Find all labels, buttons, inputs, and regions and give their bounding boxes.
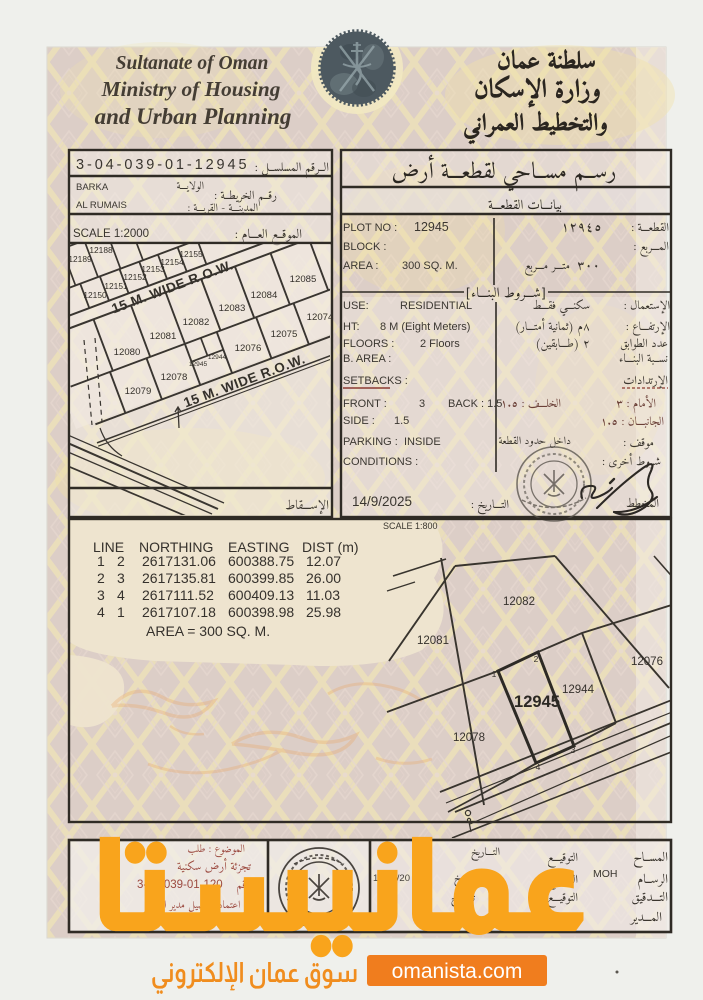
svg-text:BACK : 1.5: BACK : 1.5 xyxy=(448,398,502,410)
svg-text:8 M (Eight Meters): 8 M (Eight Meters) xyxy=(380,321,470,333)
svg-text:HT:: HT: xyxy=(343,321,360,333)
svg-text:12085: 12085 xyxy=(290,274,317,285)
svg-text:11.03: 11.03 xyxy=(306,587,340,603)
svg-text:12945: 12945 xyxy=(414,220,449,234)
svg-text:SIDE :: SIDE : xyxy=(343,415,375,427)
svg-text:1: 1 xyxy=(97,553,105,569)
svg-text:12944: 12944 xyxy=(562,684,595,696)
svg-text:12945: 12945 xyxy=(189,361,208,368)
svg-text:omanista.com: omanista.com xyxy=(392,960,523,983)
svg-text:2 Floors: 2 Floors xyxy=(420,338,460,350)
svg-text:Sultanate of Oman: Sultanate of Oman xyxy=(116,53,269,74)
svg-text:SCALE 1:800: SCALE 1:800 xyxy=(383,521,438,531)
svg-text:1: 1 xyxy=(492,669,497,679)
svg-text:2: 2 xyxy=(117,553,125,569)
svg-text:CONDITIONS :: CONDITIONS : xyxy=(343,456,418,468)
svg-text:600388.75: 600388.75 xyxy=(228,553,294,569)
svg-text:12079: 12079 xyxy=(125,386,152,397)
svg-text:FLOORS :: FLOORS : xyxy=(343,338,394,350)
svg-text:12080: 12080 xyxy=(114,347,141,358)
svg-text:SETBACKS :: SETBACKS : xyxy=(343,375,408,387)
svg-text:12078: 12078 xyxy=(161,372,188,383)
svg-text:12945: 12945 xyxy=(514,693,560,711)
svg-text:12150: 12150 xyxy=(83,290,107,300)
svg-text:4: 4 xyxy=(97,604,105,620)
svg-text:AREA = 300 SQ. M.: AREA = 300 SQ. M. xyxy=(146,623,270,639)
svg-text:4: 4 xyxy=(536,762,541,772)
svg-text:300 SQ. M.: 300 SQ. M. xyxy=(402,260,458,272)
svg-text:14/9/2025: 14/9/2025 xyxy=(352,494,412,509)
svg-text:2617131.06: 2617131.06 xyxy=(142,553,216,569)
svg-text:12076: 12076 xyxy=(631,656,663,668)
svg-text:[: [ xyxy=(466,285,470,300)
svg-text:12074: 12074 xyxy=(307,312,334,323)
svg-text:12081: 12081 xyxy=(150,331,177,342)
svg-text:12081: 12081 xyxy=(417,635,449,647)
svg-text:AL RUMAIS: AL RUMAIS xyxy=(76,200,127,211)
svg-text:3: 3 xyxy=(97,587,105,603)
svg-text:2617107.18: 2617107.18 xyxy=(142,604,216,620)
svg-text:3: 3 xyxy=(117,570,125,586)
svg-text:600409.13: 600409.13 xyxy=(228,587,294,603)
svg-text:12084: 12084 xyxy=(251,290,278,301)
svg-text:]: ] xyxy=(542,285,546,300)
svg-text:BLOCK :: BLOCK : xyxy=(343,241,386,253)
svg-text:600399.85: 600399.85 xyxy=(228,570,294,586)
svg-text:12189: 12189 xyxy=(68,254,92,264)
svg-text:12151: 12151 xyxy=(104,281,128,291)
svg-text:2617135.81: 2617135.81 xyxy=(142,570,216,586)
svg-text:3-04-039-01-12945: 3-04-039-01-12945 xyxy=(76,157,249,173)
svg-text:and Urban Planning: and Urban Planning xyxy=(95,104,292,129)
svg-text:FRONT :: FRONT : xyxy=(343,398,387,410)
svg-text:3: 3 xyxy=(571,745,576,755)
svg-text:2: 2 xyxy=(97,570,105,586)
svg-text:12075: 12075 xyxy=(271,329,298,340)
svg-text:B. AREA :: B. AREA : xyxy=(343,353,391,365)
svg-text:PLOT NO :: PLOT NO : xyxy=(343,222,397,234)
svg-text:2: 2 xyxy=(534,654,539,664)
svg-text:12188: 12188 xyxy=(89,245,113,255)
svg-text:PARKING :: PARKING : xyxy=(343,436,398,448)
svg-text:RESIDENTIAL: RESIDENTIAL xyxy=(400,300,472,312)
svg-text:INSIDE: INSIDE xyxy=(404,436,441,448)
svg-text:12082: 12082 xyxy=(183,317,210,328)
svg-text:25.98: 25.98 xyxy=(306,604,341,620)
svg-text:600398.98: 600398.98 xyxy=(228,604,294,620)
svg-text:USE:: USE: xyxy=(343,300,369,312)
svg-text:4: 4 xyxy=(117,587,125,603)
svg-text:12083: 12083 xyxy=(219,303,246,314)
svg-text:1.5: 1.5 xyxy=(394,415,409,427)
svg-text:SCALE 1:2000: SCALE 1:2000 xyxy=(73,228,149,240)
svg-text:BARKA: BARKA xyxy=(76,182,109,193)
svg-text:12082: 12082 xyxy=(503,596,535,608)
svg-text:AREA :: AREA : xyxy=(343,260,378,272)
svg-text:26.00: 26.00 xyxy=(306,570,341,586)
svg-text:12078: 12078 xyxy=(453,732,485,744)
svg-text:12076: 12076 xyxy=(235,343,262,354)
svg-text:MOH: MOH xyxy=(593,868,618,880)
svg-text:Ministry of Housing: Ministry of Housing xyxy=(101,77,281,101)
svg-text:12.07: 12.07 xyxy=(306,553,341,569)
svg-text:12944: 12944 xyxy=(208,354,227,361)
svg-text:2617111.52: 2617111.52 xyxy=(142,587,214,603)
svg-text:1: 1 xyxy=(117,604,125,620)
svg-text:3: 3 xyxy=(419,398,425,410)
